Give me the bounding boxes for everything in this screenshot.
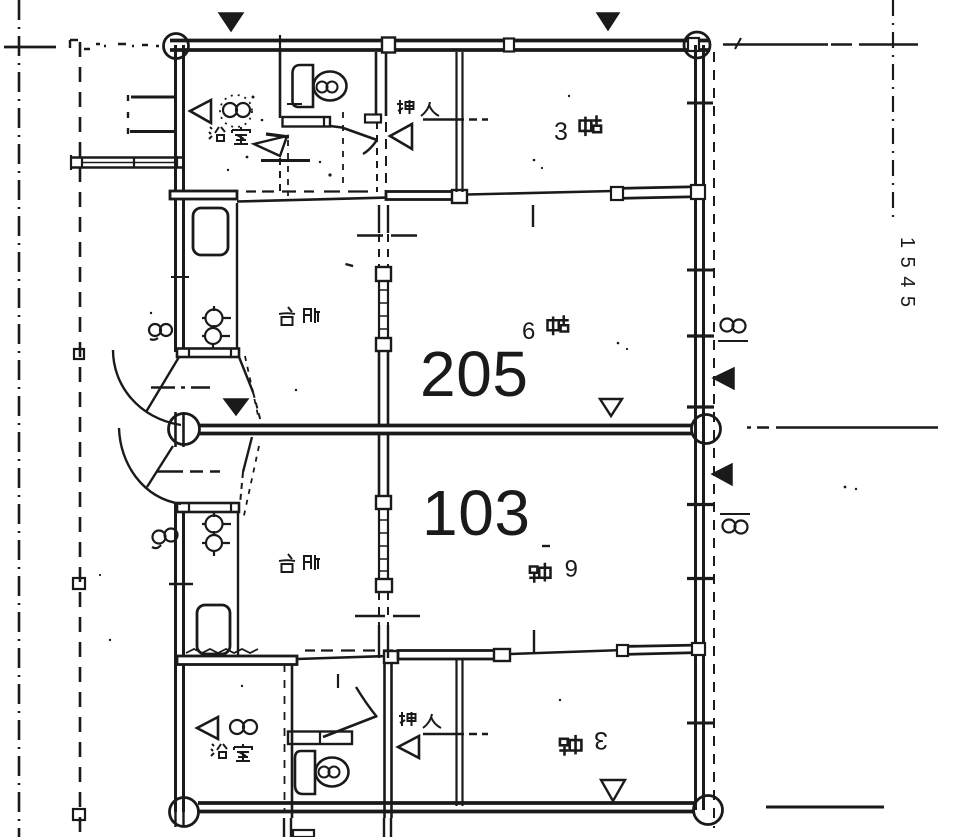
svg-text:103: 103 xyxy=(422,477,530,549)
svg-text:3: 3 xyxy=(594,726,608,754)
svg-text:205: 205 xyxy=(420,338,528,410)
svg-text:3: 3 xyxy=(554,118,568,146)
svg-text:6: 6 xyxy=(565,554,578,581)
